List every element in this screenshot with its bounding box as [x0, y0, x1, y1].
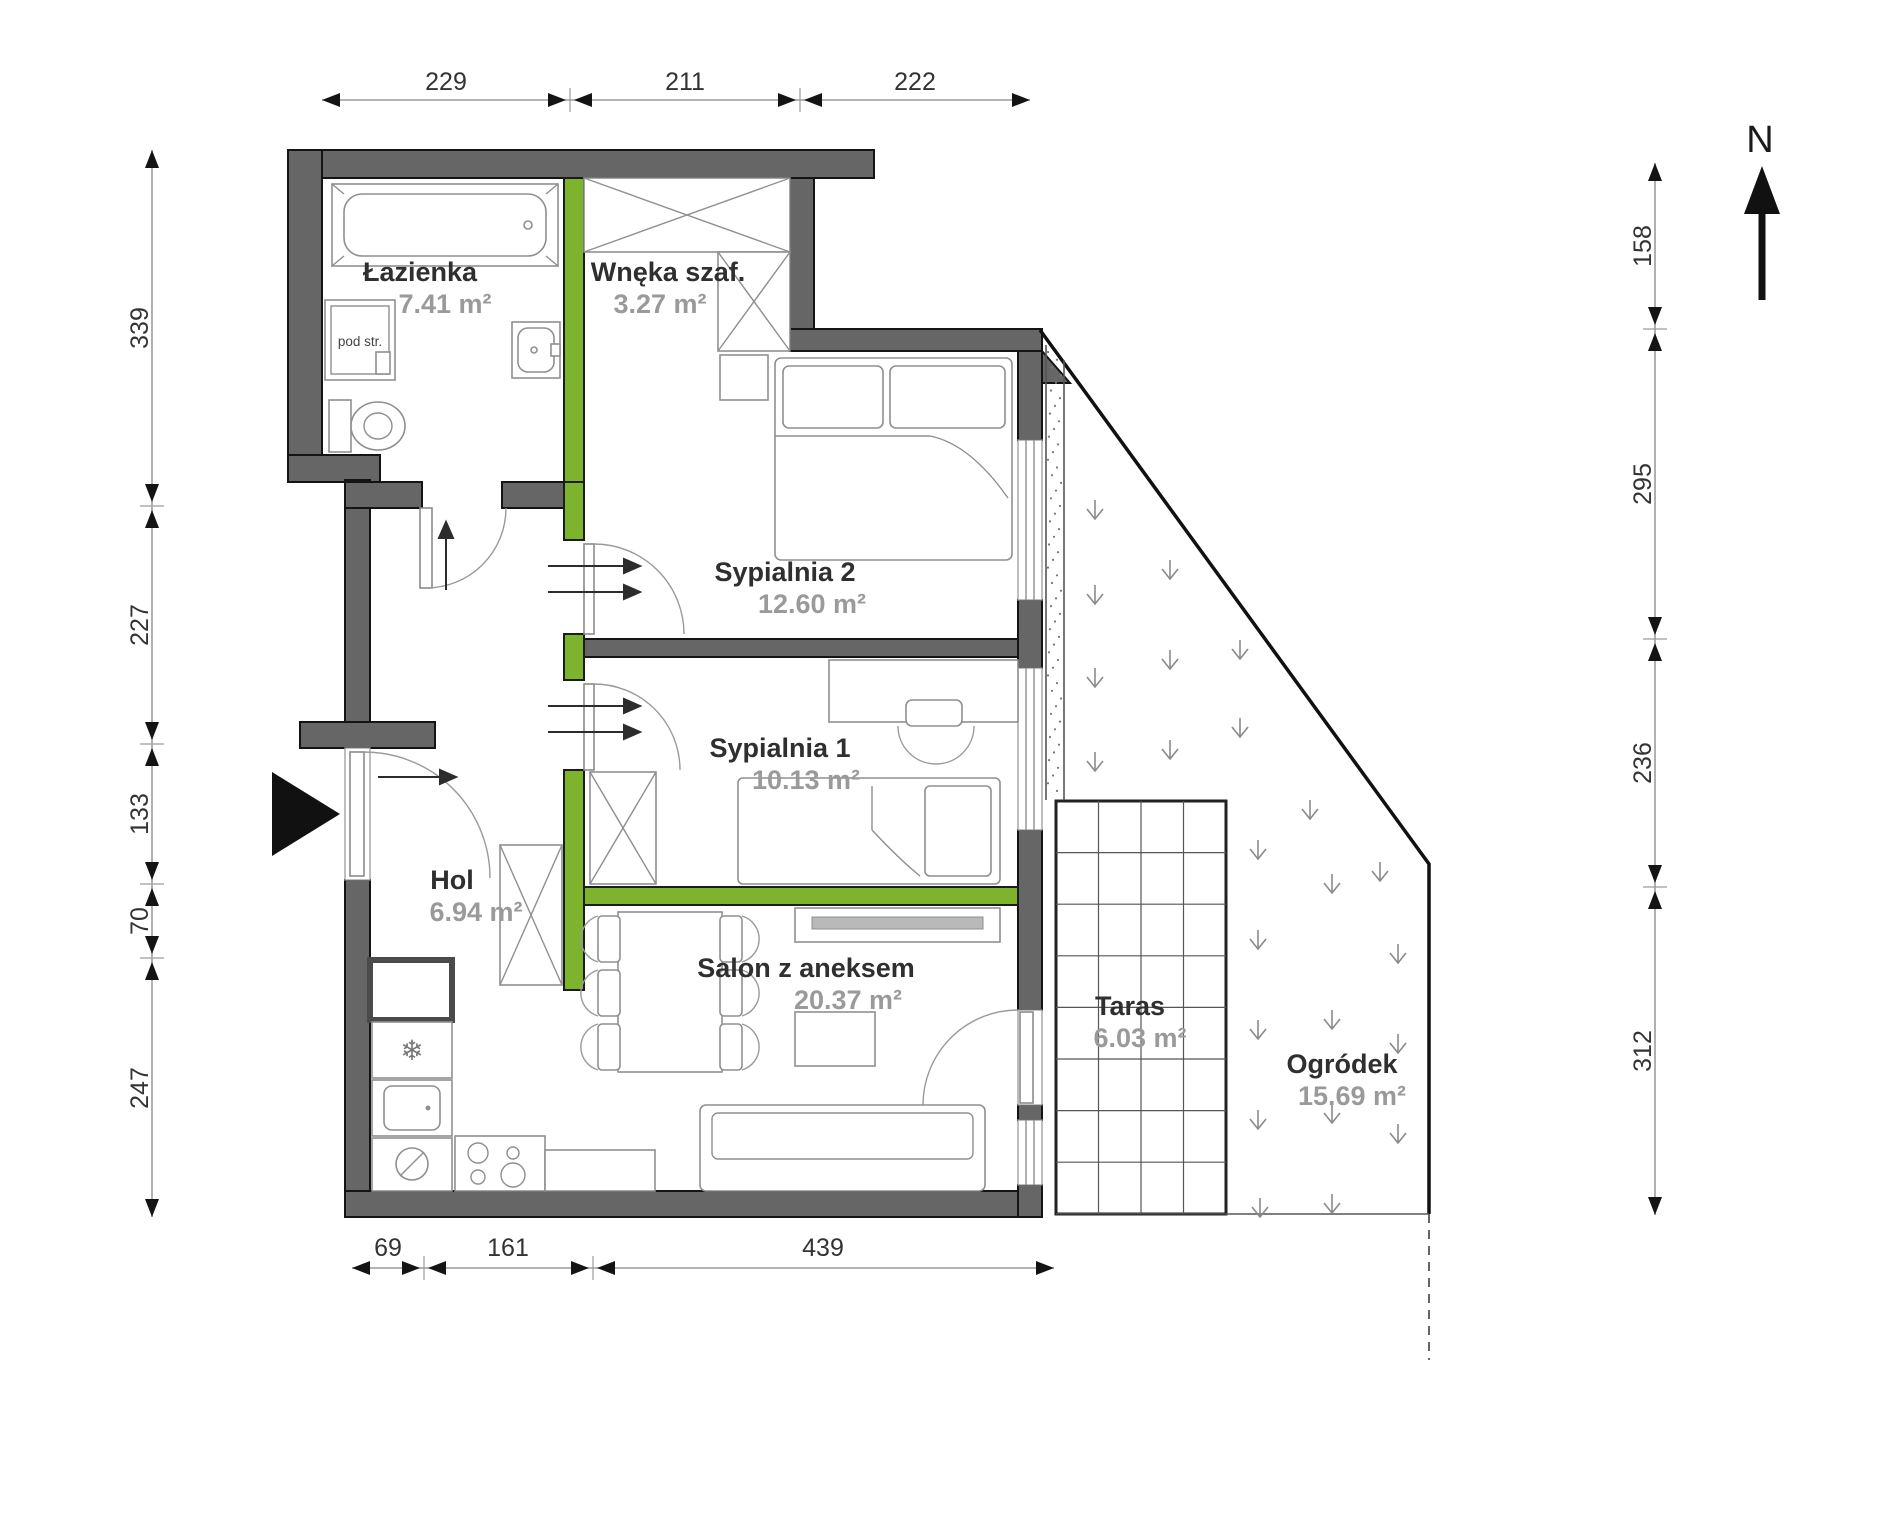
dim-left-4: 70: [126, 907, 154, 935]
desk-chair-seat: [906, 700, 962, 726]
toilet-tank: [329, 400, 351, 452]
green-wall-bath-divider: [564, 178, 584, 482]
grass-icon: [1324, 1010, 1340, 1029]
gravel-dots: [1047, 351, 1062, 792]
window-sypialnia1: [1018, 668, 1042, 830]
entrance-door-arrow-icon: [378, 770, 456, 784]
dim-bottom-3: 439: [802, 1234, 844, 1262]
wall-right-2: [1018, 600, 1042, 668]
grass-icon: [1087, 668, 1103, 687]
counter-icon: [545, 1150, 655, 1191]
toilet-icon: [351, 402, 405, 450]
wall-bottom: [345, 1191, 1042, 1217]
grass-icon: [1390, 1124, 1406, 1143]
north-arrow-icon: N: [1744, 119, 1780, 300]
wall-left-upper: [288, 150, 322, 480]
wall-right-4: [1018, 1105, 1042, 1120]
floorplan-svg: ❄ N 22: [0, 0, 1900, 1526]
floorplan-page: ❄ N 22: [0, 0, 1900, 1526]
dining-table-icon: [618, 912, 722, 1072]
dim-right-3: 236: [1629, 742, 1657, 784]
bath-sink-drain: [531, 347, 537, 353]
dim-right-2: 295: [1629, 463, 1657, 505]
grass-icon: [1324, 874, 1340, 893]
wall-top: [288, 150, 874, 178]
room-area-salon: 20.37 m²: [794, 985, 902, 1015]
grass-icon: [1250, 840, 1266, 859]
bath-door-leaf: [420, 508, 432, 588]
grass-icon: [1087, 752, 1103, 771]
entrance-door-swing: [364, 752, 490, 878]
room-area-sypialnia2: 12.60 m²: [758, 589, 866, 619]
wall-bedroom-divider: [584, 639, 1018, 657]
grass-icon: [1087, 585, 1103, 604]
syp2-door-leaf: [584, 544, 594, 634]
salon-furniture: [581, 908, 1000, 1191]
wall-right-3: [1018, 830, 1042, 1010]
stove-icon: [455, 1136, 545, 1191]
dim-left-1: 339: [126, 307, 154, 349]
room-name-salon: Salon z aneksem: [697, 953, 915, 983]
wall-wneka-right: [790, 178, 814, 351]
kitchen-sink-basin: [384, 1086, 440, 1130]
wall-bath-bottom-left: [345, 482, 422, 508]
grass-icon: [1324, 1194, 1340, 1213]
room-name-sypialnia1: Sypialnia 1: [709, 733, 850, 763]
balcony-door-swing: [923, 1010, 1018, 1105]
sypialnia2-furniture: [720, 355, 1012, 560]
wall-right-5: [1018, 1185, 1042, 1217]
single-bed-pillow: [925, 786, 991, 876]
syp1-door-swing: [594, 684, 680, 770]
washing-machine-detail: [376, 352, 390, 374]
wall-bath-bottom-right: [502, 482, 564, 508]
north-arrow-head: [1744, 166, 1780, 214]
grass-icon: [1087, 500, 1103, 519]
dim-top-2: 211: [665, 68, 705, 96]
desk-chair-back: [898, 726, 974, 764]
room-name-taras: Taras: [1095, 991, 1165, 1021]
bath-door-swing: [426, 508, 506, 588]
room-name-ogrodek: Ogródek: [1286, 1049, 1398, 1079]
north-label: N: [1746, 119, 1773, 161]
pillow-right: [890, 366, 1005, 428]
pillow-left: [783, 366, 883, 428]
dim-left-3: 133: [126, 793, 154, 835]
grass-icon: [1250, 930, 1266, 949]
grass-icon: [1372, 862, 1388, 881]
wall-left-lower: [345, 880, 370, 1191]
wall-right-1: [1018, 351, 1042, 440]
green-wall-salon-divider: [584, 887, 1018, 905]
room-area-sypialnia1: 10.13 m²: [752, 765, 860, 795]
grass-icon: [1232, 718, 1248, 737]
entrance-arrow-icon: [272, 772, 340, 856]
room-area-taras: 6.03 m²: [1093, 1023, 1186, 1053]
room-name-hol: Hol: [430, 865, 474, 895]
room-area-lazienka: 7.41 m²: [398, 289, 491, 319]
grass-icon: [1162, 560, 1178, 579]
washer-label: pod str.: [338, 334, 382, 349]
green-wall-hol-right: [564, 770, 584, 990]
balcony-door-leaf: [1020, 1012, 1033, 1103]
window-salon: [1018, 1120, 1042, 1185]
wall-step: [288, 455, 380, 482]
green-wall-stub-2: [564, 634, 584, 680]
grass-icon: [1302, 800, 1318, 819]
sofa-icon: [700, 1105, 985, 1191]
bath-door-arrow-icon: [439, 522, 453, 590]
wall-entry-jut: [300, 722, 435, 748]
dim-bottom-1: 69: [374, 1234, 402, 1262]
grass-icon: [1390, 944, 1406, 963]
dim-top-1: 229: [425, 68, 467, 96]
bathtub-inner: [344, 194, 546, 256]
snowflake-icon: ❄: [400, 1035, 423, 1066]
kitchen-shaft: [370, 960, 452, 1020]
syp2-door-swing: [594, 544, 684, 634]
wall-hol-left: [345, 480, 370, 726]
dim-right-4: 312: [1629, 1030, 1657, 1072]
green-wall-stub-1: [564, 482, 584, 540]
kitchen-sink-drain: [426, 1106, 431, 1111]
dim-bottom-2: 161: [487, 1234, 529, 1262]
window-sypialnia2: [1018, 440, 1042, 600]
wall-syp2-top: [790, 329, 1042, 351]
dim-top-3: 222: [894, 68, 936, 96]
grass-icon: [1250, 1020, 1266, 1039]
room-area-hol: 6.94 m²: [429, 897, 522, 927]
grass-icon: [1162, 650, 1178, 669]
entrance-door-leaf: [350, 752, 364, 876]
grass-icon: [1250, 1110, 1266, 1129]
dim-left-2: 227: [126, 604, 154, 646]
tv-icon: [812, 917, 983, 929]
bathtub-drain: [524, 221, 532, 229]
room-name-lazienka: Łazienka: [363, 257, 478, 287]
bath-sink-tap: [551, 344, 560, 356]
syp1-door-leaf: [584, 684, 594, 770]
grass-icon: [1232, 640, 1248, 659]
nightstand-icon: [720, 355, 768, 400]
room-area-ogrodek: 15.69 m²: [1298, 1081, 1406, 1111]
room-area-wneka: 3.27 m²: [613, 289, 706, 319]
room-name-wneka: Wnęka szaf.: [591, 257, 746, 287]
dim-right-1: 158: [1629, 225, 1657, 267]
coffee-table-icon: [795, 1012, 875, 1066]
room-name-sypialnia2: Sypialnia 2: [714, 557, 855, 587]
dim-left-5: 247: [126, 1067, 154, 1109]
grass-icon: [1162, 740, 1178, 759]
